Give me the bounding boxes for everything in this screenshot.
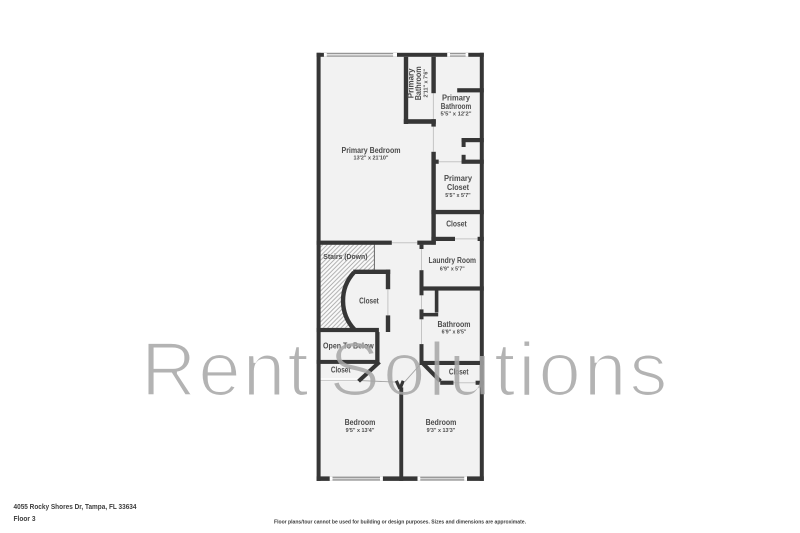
svg-text:Primary Bedroom: Primary Bedroom [342, 146, 401, 155]
svg-text:Rent: Rent [141, 328, 310, 413]
svg-text:Solutions: Solutions [329, 328, 670, 413]
svg-text:Laundry Room: Laundry Room [429, 256, 477, 265]
svg-text:6'9" x 5'7": 6'9" x 5'7" [440, 266, 465, 272]
svg-text:5'5" x 12'2": 5'5" x 12'2" [441, 112, 472, 118]
svg-text:9'5" x 13'4": 9'5" x 13'4" [346, 428, 375, 434]
svg-text:Stairs (Down): Stairs (Down) [323, 252, 368, 261]
svg-text:Closet: Closet [447, 183, 469, 192]
svg-text:2'11" x 7'6": 2'11" x 7'6" [423, 69, 429, 98]
svg-text:Bathroom: Bathroom [414, 66, 423, 100]
svg-text:Bedroom: Bedroom [426, 418, 457, 427]
svg-text:4055 Rocky Shores Dr, Tampa, F: 4055 Rocky Shores Dr, Tampa, FL 33634 [14, 502, 138, 511]
svg-text:Bathroom: Bathroom [441, 102, 472, 111]
svg-text:Floor 3: Floor 3 [14, 514, 36, 523]
svg-text:Floor plans/tour cannot be use: Floor plans/tour cannot be used for buil… [274, 520, 527, 526]
svg-text:9'3" x 13'3": 9'3" x 13'3" [427, 428, 456, 434]
svg-text:13'2" x 21'10": 13'2" x 21'10" [354, 156, 389, 162]
svg-text:5'5" x 5'7": 5'5" x 5'7" [445, 193, 471, 199]
svg-text:Bedroom: Bedroom [345, 418, 376, 427]
svg-text:Closet: Closet [446, 220, 467, 229]
svg-text:Primary: Primary [444, 174, 473, 183]
svg-text:Closet: Closet [359, 296, 379, 305]
